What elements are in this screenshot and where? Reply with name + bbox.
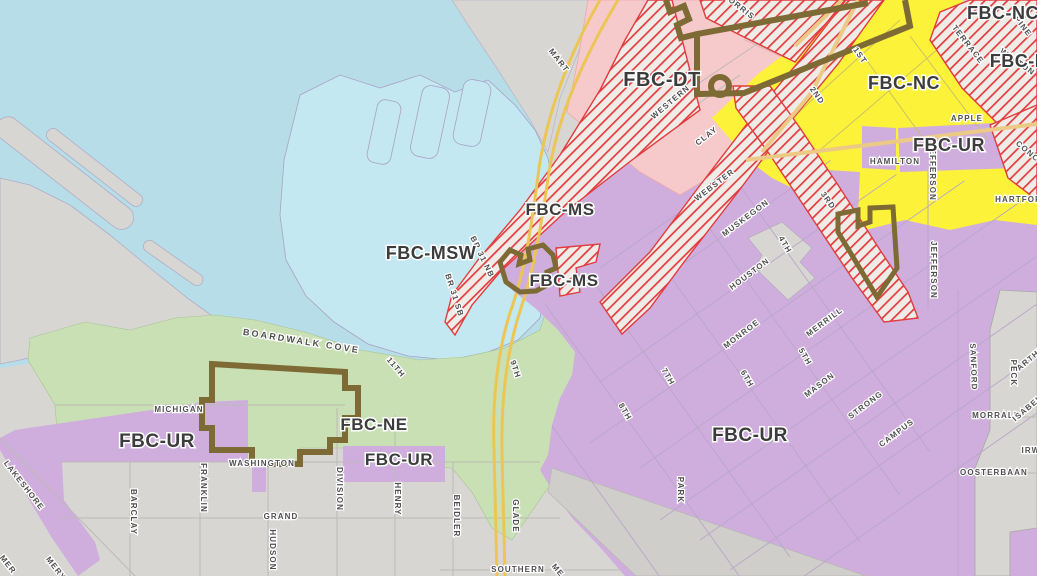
street-label: GLADE: [511, 499, 520, 533]
zone-label: FBC-NE: [340, 415, 407, 434]
zone-label: FBC-UR: [913, 135, 985, 155]
street-label: WASHINGTON: [229, 459, 295, 468]
street-label: HUDSON: [268, 529, 277, 570]
street-label: BARCLAY: [129, 489, 138, 535]
street-label: HAMILTON: [870, 157, 920, 166]
street-label: IRWIN: [1022, 446, 1037, 455]
street-label: HENRY: [393, 482, 402, 515]
street-label: OOSTERBAAN: [960, 468, 1028, 477]
zone-label: FBC-MSW: [386, 243, 476, 263]
street-label: FRANKLIN: [199, 463, 208, 513]
street-label: APPLE: [951, 114, 983, 123]
street-label: PARK: [676, 477, 685, 503]
street-label: SANFORD: [968, 343, 979, 391]
street-label: DIVISION: [335, 467, 344, 511]
street-label: BEIDLER: [452, 495, 461, 538]
zoning-map-canvas: MARTMORRISWESTERNCLAY1ST2ND3RD4THWEBSTER…: [0, 0, 1037, 576]
zone-label: FBC-NC: [868, 73, 940, 93]
zone-label: FBC-UR: [712, 425, 788, 446]
street-label: HARTFORD: [995, 195, 1037, 204]
zone-label: FBC-UR: [365, 450, 433, 469]
street-label: GRAND: [264, 512, 299, 521]
zone-label: FBC-NC: [967, 3, 1037, 23]
zone-label: FBC-DT: [623, 69, 700, 91]
zone-label: FBC-MS: [525, 200, 594, 219]
zone-label: FBC-M: [990, 51, 1037, 71]
zoning-map[interactable]: MARTMORRISWESTERNCLAY1ST2ND3RD4THWEBSTER…: [0, 0, 1037, 576]
zone-label: FBC-UR: [119, 431, 195, 452]
street-label: MICHIGAN: [154, 405, 203, 414]
zone-label: FBC-MS: [529, 271, 598, 290]
street-label: JEFFERSON: [929, 241, 938, 299]
street-label: SOUTHERN: [491, 565, 545, 574]
